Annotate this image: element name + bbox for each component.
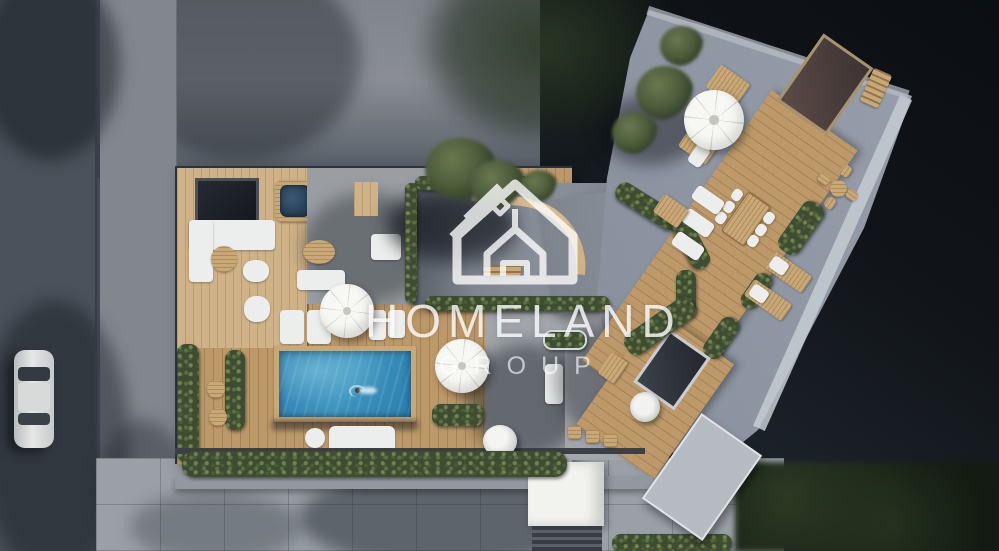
wing-tree-2 [612, 112, 658, 154]
terrace-rug [303, 240, 335, 264]
pool-deck-planter [432, 404, 484, 426]
rooftop-hedge-bottom [425, 296, 610, 311]
corner-stool-1 [568, 426, 581, 439]
roof-tree-3 [520, 170, 558, 202]
pool-umbrella [320, 284, 374, 338]
roof-tree-2 [470, 160, 526, 208]
rooftop-bench [483, 265, 521, 276]
corner-stool-3 [604, 434, 617, 447]
outdoor-shower-panel [354, 182, 378, 216]
pod-lounger-1 [243, 260, 269, 282]
swimming-pool [279, 351, 411, 417]
rooftop-hedge-left [405, 183, 417, 303]
wing-tree-3 [660, 26, 704, 66]
car-rear-window [18, 413, 50, 425]
sunbed-1 [280, 310, 304, 344]
skylight [195, 178, 259, 224]
sunbed-4 [388, 310, 405, 338]
swimmer-arms [349, 385, 365, 397]
daybed-side-table [305, 428, 325, 448]
car-roof [18, 383, 50, 411]
entry-stairs [532, 526, 602, 551]
walkway-planter-west [177, 344, 199, 462]
south-hedge-row [182, 451, 567, 477]
wing-tree-1 [636, 66, 694, 120]
papasan-chair [630, 392, 660, 422]
corner-planter-box [543, 330, 587, 350]
walkway-planter-pot-2 [209, 408, 227, 426]
terrace-umbrella [435, 339, 489, 393]
foliage-strip-bottom [612, 534, 732, 551]
hot-tub [280, 185, 310, 217]
bottom-right-foliage [735, 462, 999, 551]
pod-lounger-2 [244, 296, 270, 322]
corner-stool-2 [586, 430, 599, 443]
corner-sofa-side [189, 220, 213, 282]
aerial-render: HOMELAND GROUP [0, 0, 999, 551]
car [14, 350, 54, 448]
car-windshield [18, 367, 50, 381]
round-coffee-table [211, 246, 237, 272]
walkway-planter-east [225, 350, 245, 430]
walkway-planter-pot-1 [207, 380, 225, 398]
